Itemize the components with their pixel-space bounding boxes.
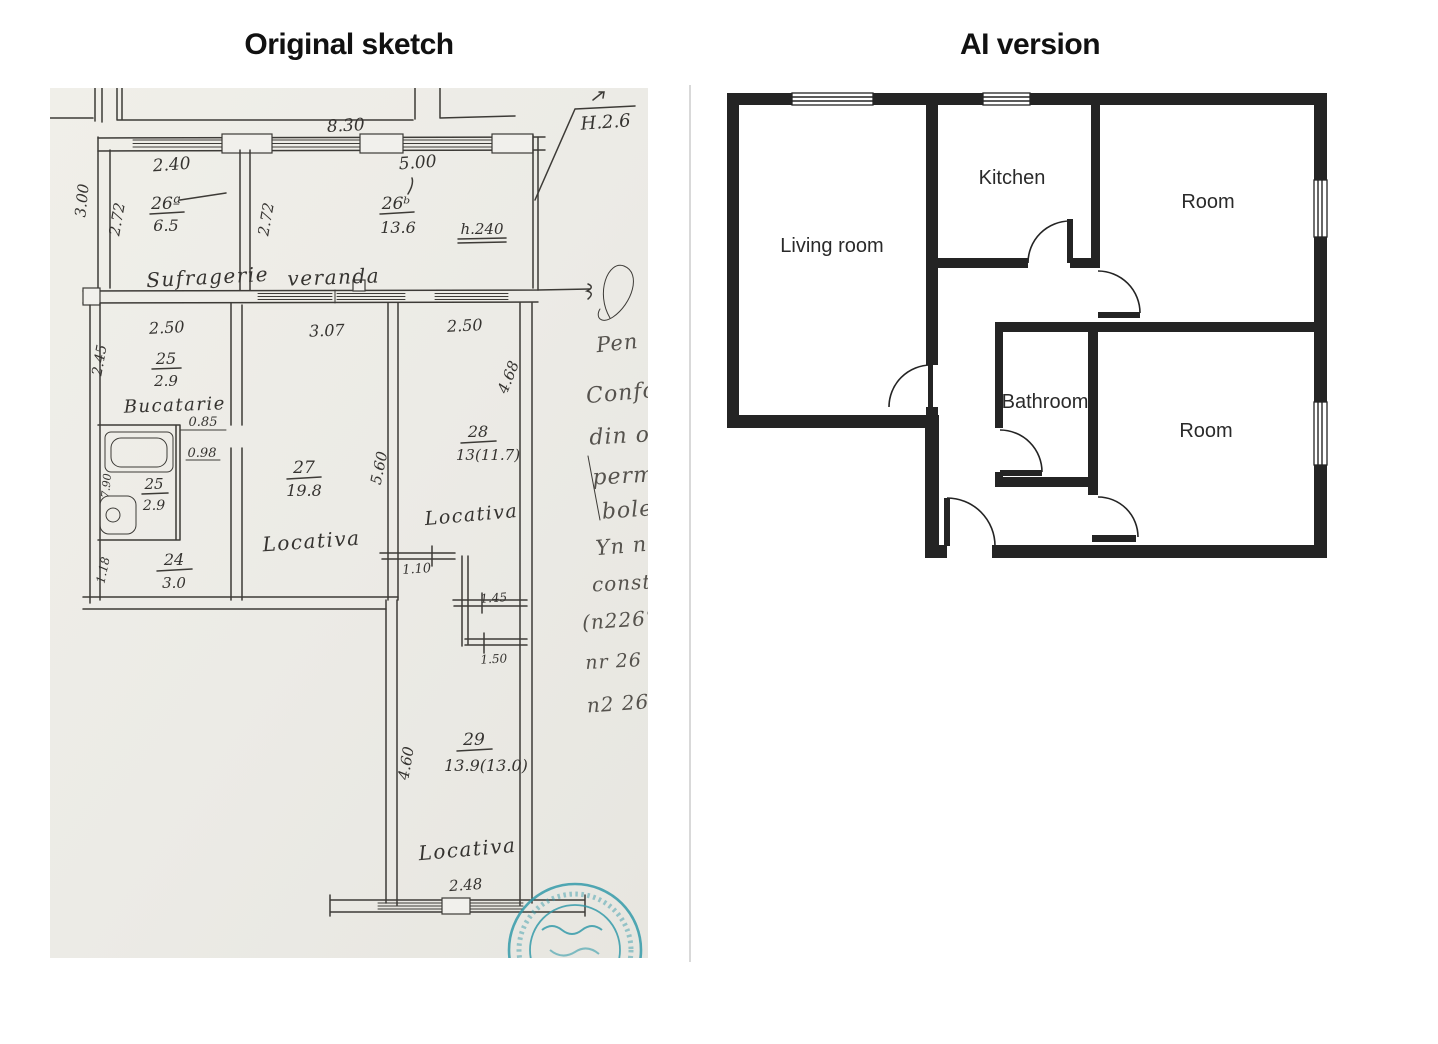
window-right-room-bottom [1314,402,1327,465]
paper [50,88,648,958]
dim-300: 3.00 [71,182,92,218]
svg-text:n2 26°: n2 26° [586,688,648,717]
svg-text:27: 27 [292,458,315,478]
sketch-drawing: H.2.6 8.30 2.40 2.72 3.00 26ª 6.5 Sufrag… [50,88,648,958]
dim-830: 8.30 [326,115,365,137]
svg-text:28: 28 [467,422,488,441]
window-top-kitchen [983,93,1030,105]
original-sketch-panel: H.2.6 8.30 2.40 2.72 3.00 26ª 6.5 Sufrag… [50,88,648,958]
dim-500: 5.00 [398,152,437,175]
dim-248: 2.48 [447,875,483,895]
svg-text:Pen: Pen [594,329,639,357]
svg-text:perm: perm [592,462,648,490]
label-room-top: Room [1181,191,1234,213]
svg-text:Confo: Confo [585,378,648,409]
room-veranda: veranda [287,263,381,290]
label-room-bottom: Room [1179,420,1232,442]
label-living-room: Living room [780,235,883,257]
door-kitchen [1028,219,1073,263]
svg-text:6.5: 6.5 [153,216,178,235]
svg-text:3.0: 3.0 [162,574,186,592]
vertical-divider [689,85,691,962]
dim-098: 0.98 [188,446,217,461]
dim-250b: 2.50 [445,315,483,336]
svg-text:13.9(13.0): 13.9(13.0) [444,756,528,775]
wall-pier [360,134,403,153]
dim-085: 0.85 [189,415,218,430]
label-bathroom: Bathroom [1002,391,1089,413]
window-right-room-top [1314,180,1327,237]
door-hall-bottom [944,498,995,546]
svg-text:Yn n: Yn n [595,532,648,560]
svg-text:nr 26 b: nr 26 b [585,648,648,674]
svg-text:13.6: 13.6 [380,218,416,237]
door-living-room [889,365,933,407]
svg-text:din o: din o [589,422,648,450]
wall-pier [492,134,533,153]
dim-307: 3.07 [309,320,346,340]
door-room-top [1098,271,1140,318]
dim-145: 1.45 [480,590,508,606]
dim-250a: 2.50 [147,317,185,338]
door-bathroom [1000,430,1042,476]
svg-text:25: 25 [155,349,176,368]
window-top-living [792,93,873,105]
svg-text:26ª: 26ª [150,194,181,214]
svg-text:bole: bole [601,496,648,525]
ai-floorplan: Living room Kitchen Room Bathroom Room [720,85,1340,565]
svg-text:(n226°: (n226° [581,605,648,634]
dim-790: 7.90 [99,473,114,499]
ai-plan-panel: Living room Kitchen Room Bathroom Room [720,85,1340,565]
left-title: Original sketch [50,28,648,62]
svg-text:29: 29 [462,730,485,750]
svg-text:2.9: 2.9 [142,498,165,514]
wall-pier [222,134,272,153]
dim-150: 1.50 [480,651,508,666]
svg-text:26ᵇ: 26ᵇ [381,194,411,214]
label-kitchen: Kitchen [979,167,1046,189]
flag-label: H.2.6 [579,110,631,135]
door-room-bottom [1092,497,1138,542]
ai-room-labels: Living room Kitchen Room Bathroom Room [780,167,1234,442]
dim-110: 1.10 [402,561,432,578]
svg-text:25: 25 [143,475,163,493]
right-title: AI version [720,28,1340,62]
svg-text:2.9: 2.9 [153,372,178,390]
dim-240: 2.40 [151,154,191,177]
svg-text:13(11.7): 13(11.7) [456,446,520,464]
svg-text:h.240: h.240 [460,220,504,238]
svg-text:24: 24 [163,550,184,569]
svg-text:19.8: 19.8 [286,481,322,500]
comparison-canvas: Original sketch AI version [0,0,1438,1044]
svg-text:const: const [591,569,648,596]
